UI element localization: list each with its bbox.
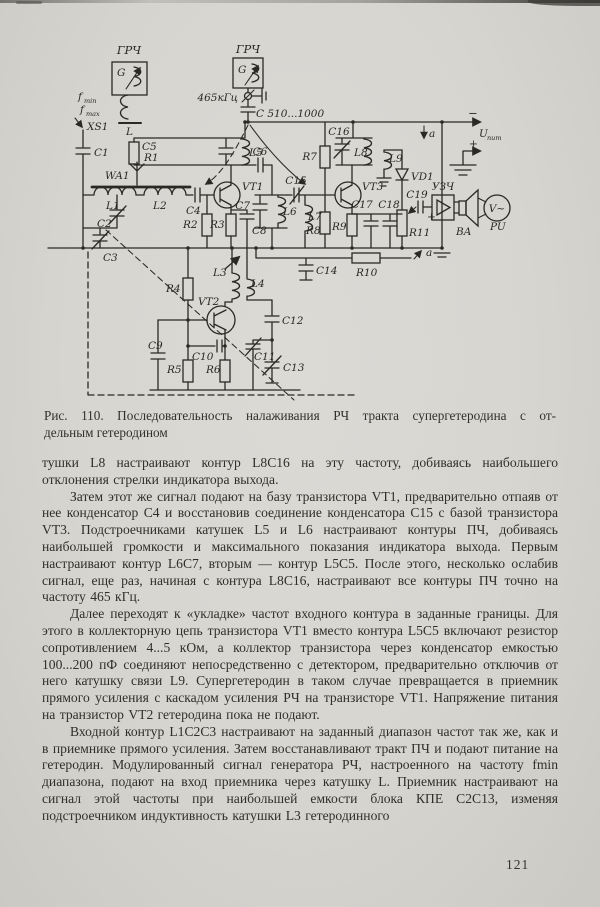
- label-c9: C9: [148, 340, 163, 352]
- label-fmin-sub: min: [84, 97, 96, 105]
- label-fmax: f: [79, 104, 86, 116]
- resistor-r1-symbol: [129, 142, 139, 164]
- label-l9: L9: [388, 153, 403, 165]
- label-c4: C4: [186, 205, 201, 217]
- label-xs1: XS1: [86, 121, 108, 133]
- label-c12: C12: [282, 315, 304, 327]
- label-l6: L6: [282, 206, 297, 218]
- resistor-r6-symbol: [220, 360, 230, 382]
- label-gen-right-g: G: [238, 64, 246, 76]
- coil-l3-trimmer: [225, 248, 239, 273]
- label-vt3: VT3: [362, 181, 384, 193]
- label-c3: C3: [103, 252, 118, 264]
- label-r11: R11: [408, 227, 430, 239]
- label-c6: C6: [253, 146, 268, 158]
- circuit-diagram: ГРЧ G L f min f max XS1 C1 WA1 L1 L2 C2 …: [0, 38, 600, 410]
- capacitor-c11-symbol: [245, 338, 272, 390]
- label-c13: C13: [283, 362, 305, 374]
- transistor-vt2-symbol: [207, 306, 235, 334]
- label-c19-plus: +: [427, 211, 436, 223]
- label-r10: R10: [355, 267, 378, 279]
- label-l2: L2: [152, 200, 167, 212]
- label-r6: R6: [205, 364, 221, 376]
- figure-caption: Рис. 110. Последовательность налаживания…: [44, 407, 556, 441]
- resistor-r3-symbol: [226, 214, 236, 236]
- label-r2: R2: [182, 219, 198, 231]
- resistor-r4-symbol: [183, 278, 193, 300]
- label-c15: C15: [285, 175, 307, 187]
- scan-edge-artifact: [0, 0, 600, 3]
- capacitor-c10-symbol: [188, 320, 225, 352]
- resistor-r9-symbol: [347, 214, 357, 236]
- label-vt1: VT1: [242, 181, 263, 193]
- paragraph: Затем этот же сигнал подают на базу тран…: [42, 489, 558, 607]
- label-l4: L4: [250, 278, 265, 290]
- label-u-plus: +: [469, 138, 478, 150]
- label-c510-1000: С 510...1000: [256, 108, 324, 120]
- capacitor-c12-symbol: [265, 316, 279, 340]
- paragraph: тушки L8 настраивают контур L8C16 на эту…: [42, 455, 558, 489]
- figure-caption-line1: Рис. 110. Последовательность налаживания…: [44, 407, 556, 424]
- label-u-minus: −: [468, 106, 478, 120]
- label-c11: C11: [254, 351, 275, 363]
- label-a-top: a: [429, 128, 435, 140]
- label-r8: R8: [305, 225, 321, 237]
- label-465khz: 465кГц: [196, 92, 238, 104]
- plug-arrow-icon: [75, 118, 82, 127]
- label-fmax-sub: max: [86, 110, 100, 118]
- plus-rail: [450, 151, 480, 175]
- label-v-meter: V~: [489, 203, 505, 215]
- page-number: 121: [506, 857, 529, 873]
- capacitor-c9-symbol: [151, 320, 165, 390]
- book-page: ГРЧ G L f min f max XS1 C1 WA1 L1 L2 C2 …: [0, 0, 600, 907]
- coil-l3-symbol: [225, 273, 240, 306]
- label-l3: L3: [212, 267, 227, 279]
- capacitor-c15-symbol: [287, 186, 335, 204]
- label-c8: C8: [252, 225, 267, 237]
- figure-caption-line2: дельным гетеродином: [44, 424, 556, 441]
- label-gen-left-title: ГРЧ: [116, 43, 142, 57]
- capacitor-c3-symbol: [92, 228, 109, 249]
- label-c10: C10: [192, 351, 214, 363]
- label-gen-left-coil: L: [125, 126, 133, 138]
- label-c17: C17: [351, 199, 373, 211]
- point-a-bottom-arrow: [414, 251, 421, 259]
- label-l7: L7: [307, 211, 322, 223]
- label-wa1: WA1: [105, 170, 130, 182]
- label-c1: C1: [94, 147, 109, 159]
- gang-link-line: [106, 230, 294, 400]
- label-vd1: VD1: [411, 171, 434, 183]
- scan-mark-artifact: [16, 1, 42, 4]
- paragraph: Далее переходят к «укладке» частот входн…: [42, 606, 558, 724]
- label-r3: R3: [209, 219, 225, 231]
- capacitor-c14-symbol: [299, 258, 313, 280]
- label-c2: C2: [97, 218, 112, 230]
- label-pu: PU: [489, 221, 507, 233]
- paragraph: Входной контур L1C2C3 настраивают на зад…: [42, 724, 558, 825]
- label-uzch: УЗЧ: [432, 181, 455, 193]
- label-c14: C14: [316, 265, 337, 277]
- capacitor-c17-symbol: [364, 214, 378, 248]
- capacitor-c18-symbol: [383, 214, 397, 248]
- label-gen-left-g: G: [117, 67, 125, 79]
- label-ba: BA: [455, 226, 472, 238]
- label-r7: R7: [301, 151, 317, 163]
- label-c7: C7: [235, 200, 250, 212]
- label-l8: L8: [353, 147, 368, 159]
- label-r9: R9: [331, 221, 347, 233]
- scan-corner-artifact: [528, 0, 600, 6]
- label-c19: C19: [406, 189, 428, 201]
- input-line: [83, 187, 214, 202]
- label-l1: L1: [105, 200, 120, 212]
- resistor-r7-symbol: [320, 146, 330, 168]
- label-r5: R5: [166, 364, 182, 376]
- label-r1: R1: [143, 152, 159, 164]
- label-c16: C16: [328, 126, 350, 138]
- label-u-pit-sub: пит: [487, 134, 502, 142]
- capacitor-c1-symbol: [76, 130, 90, 248]
- label-a-bottom: a: [426, 247, 432, 259]
- resistor-r5-symbol: [183, 360, 193, 382]
- speaker-symbol: [454, 190, 478, 226]
- capacitor-c8-symbol: [231, 210, 254, 278]
- label-c18: C18: [378, 199, 400, 211]
- label-r4: R4: [165, 283, 181, 295]
- resistor-r10-symbol: [352, 253, 380, 263]
- decoupling-line: [256, 248, 411, 258]
- if-tank2-symbol: [253, 195, 287, 248]
- body-text: тушки L8 настраивают контур L8C16 на эту…: [42, 455, 558, 825]
- label-gen-right-title: ГРЧ: [235, 42, 261, 56]
- label-fmin: f: [77, 91, 84, 103]
- label-vt2: VT2: [198, 296, 220, 308]
